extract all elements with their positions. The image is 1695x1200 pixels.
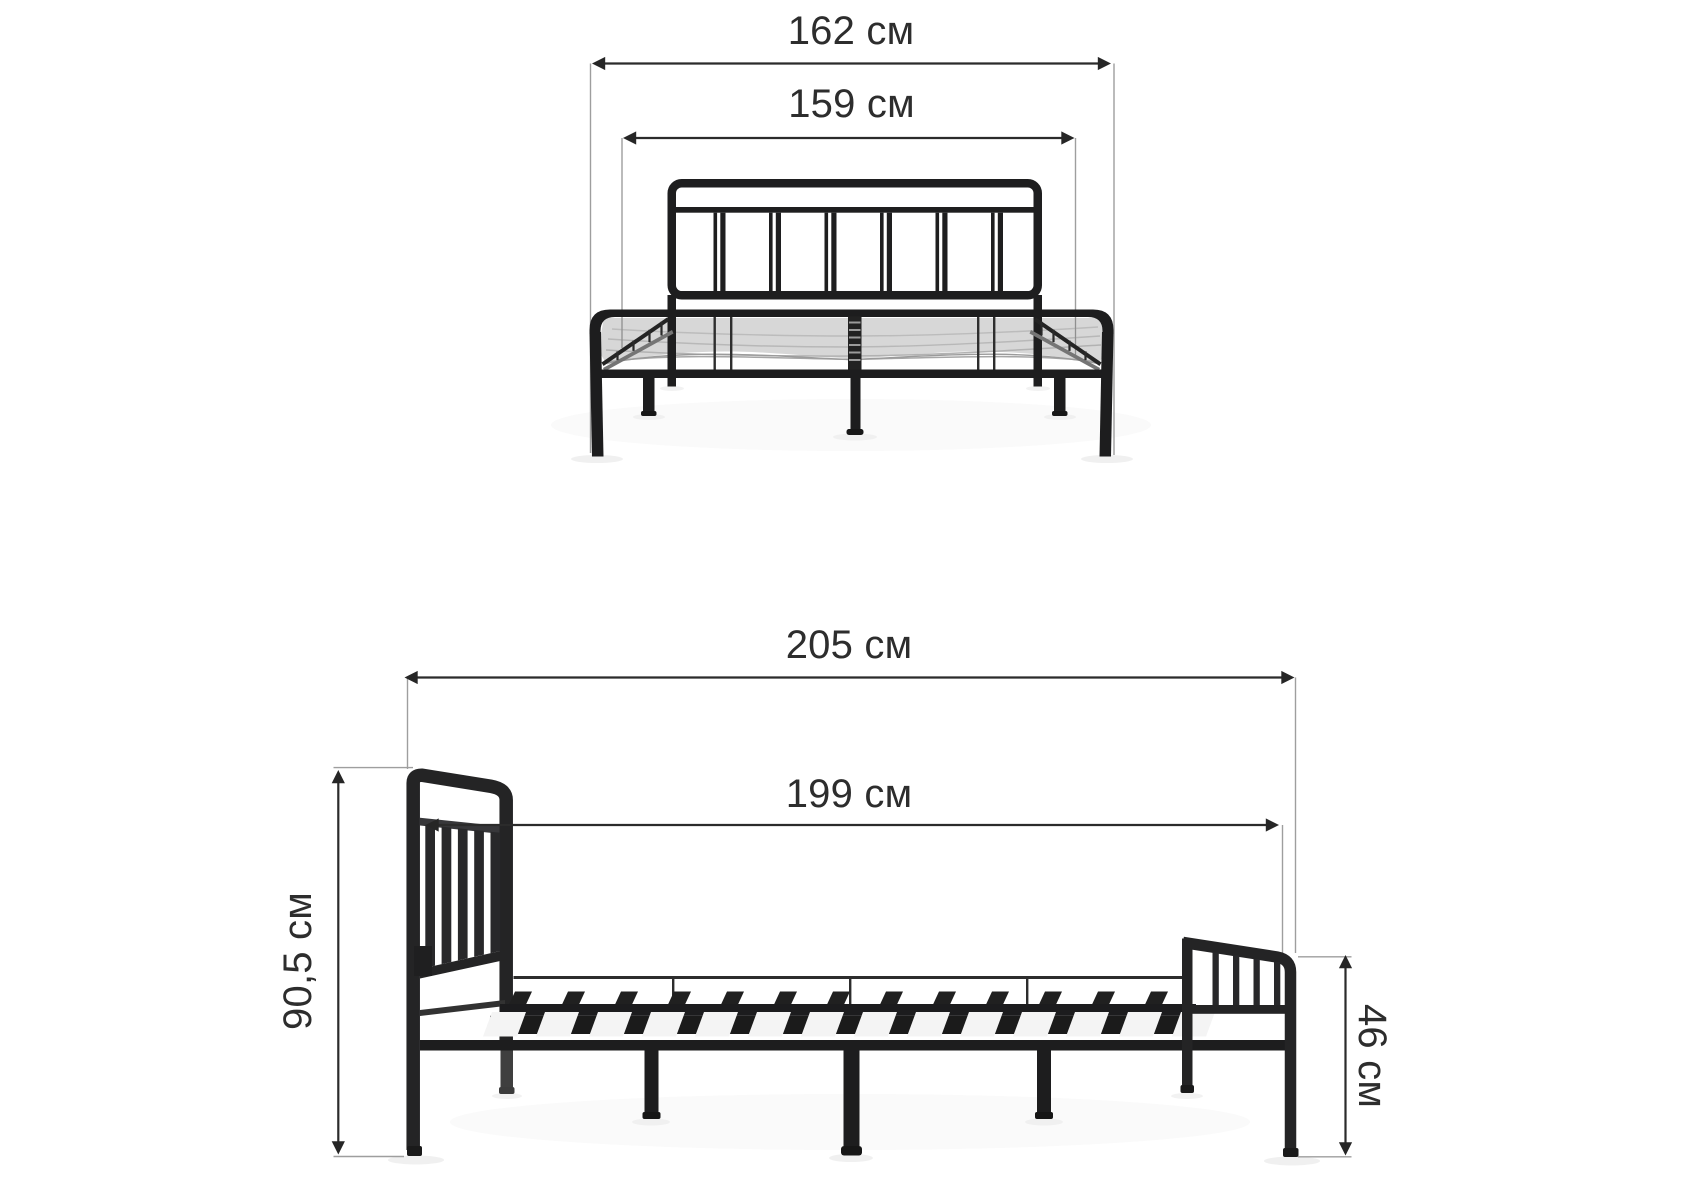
svg-text:159 см: 159 см <box>788 82 915 126</box>
svg-text:162 см: 162 см <box>788 9 915 53</box>
svg-text:46 см: 46 см <box>1350 1004 1394 1108</box>
svg-text:199 см: 199 см <box>786 772 913 816</box>
svg-text:90,5 см: 90,5 см <box>276 892 320 1030</box>
svg-text:205 см: 205 см <box>786 623 913 667</box>
